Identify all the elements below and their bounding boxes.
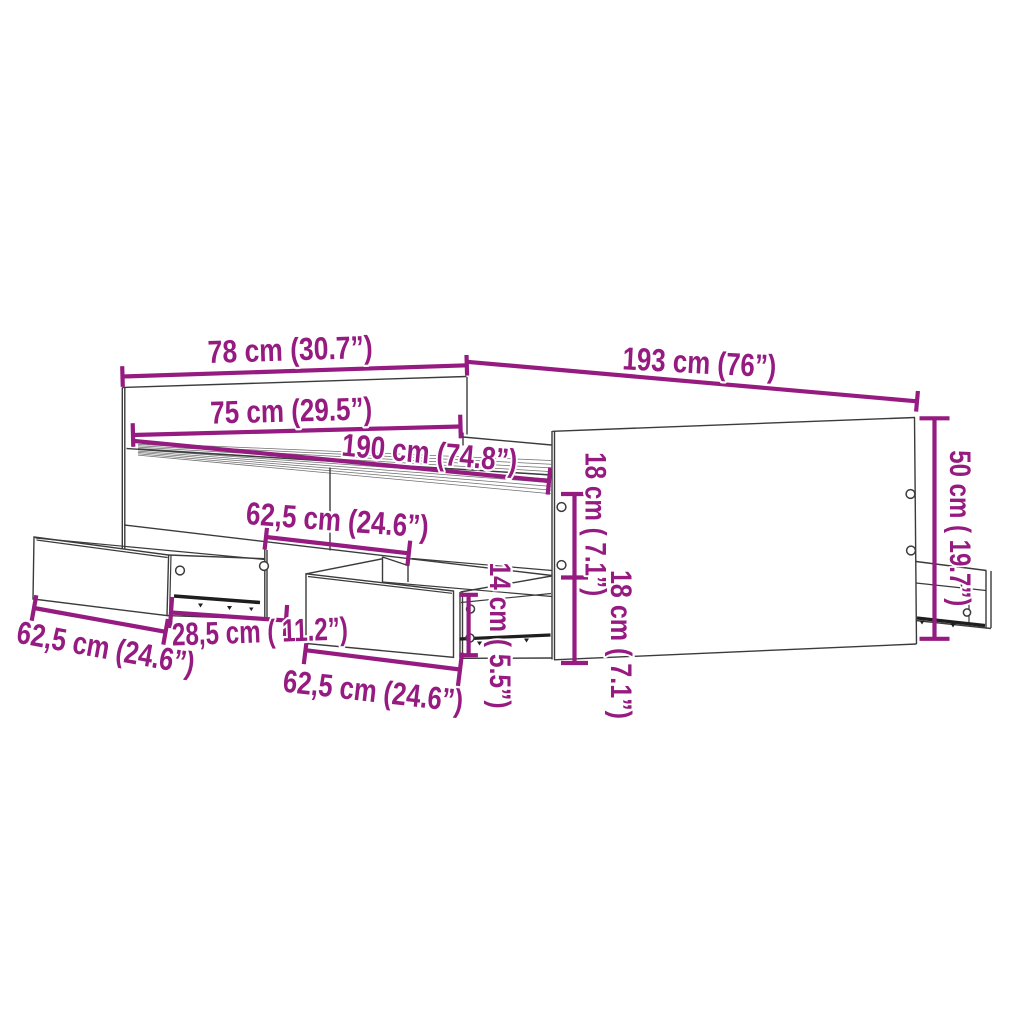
- svg-text:18 cm ( 7.1”): 18 cm ( 7.1”): [604, 570, 637, 719]
- svg-text:50 cm ( 19.7”): 50 cm ( 19.7”): [943, 450, 976, 606]
- svg-text:78 cm (30.7”): 78 cm (30.7”): [207, 329, 373, 370]
- svg-text:28,5 cm ( 11.2”): 28,5 cm ( 11.2”): [171, 610, 348, 652]
- svg-text:14 cm ( 5.5”): 14 cm ( 5.5”): [483, 563, 516, 709]
- svg-text:75 cm (29.5”): 75 cm (29.5”): [210, 390, 373, 430]
